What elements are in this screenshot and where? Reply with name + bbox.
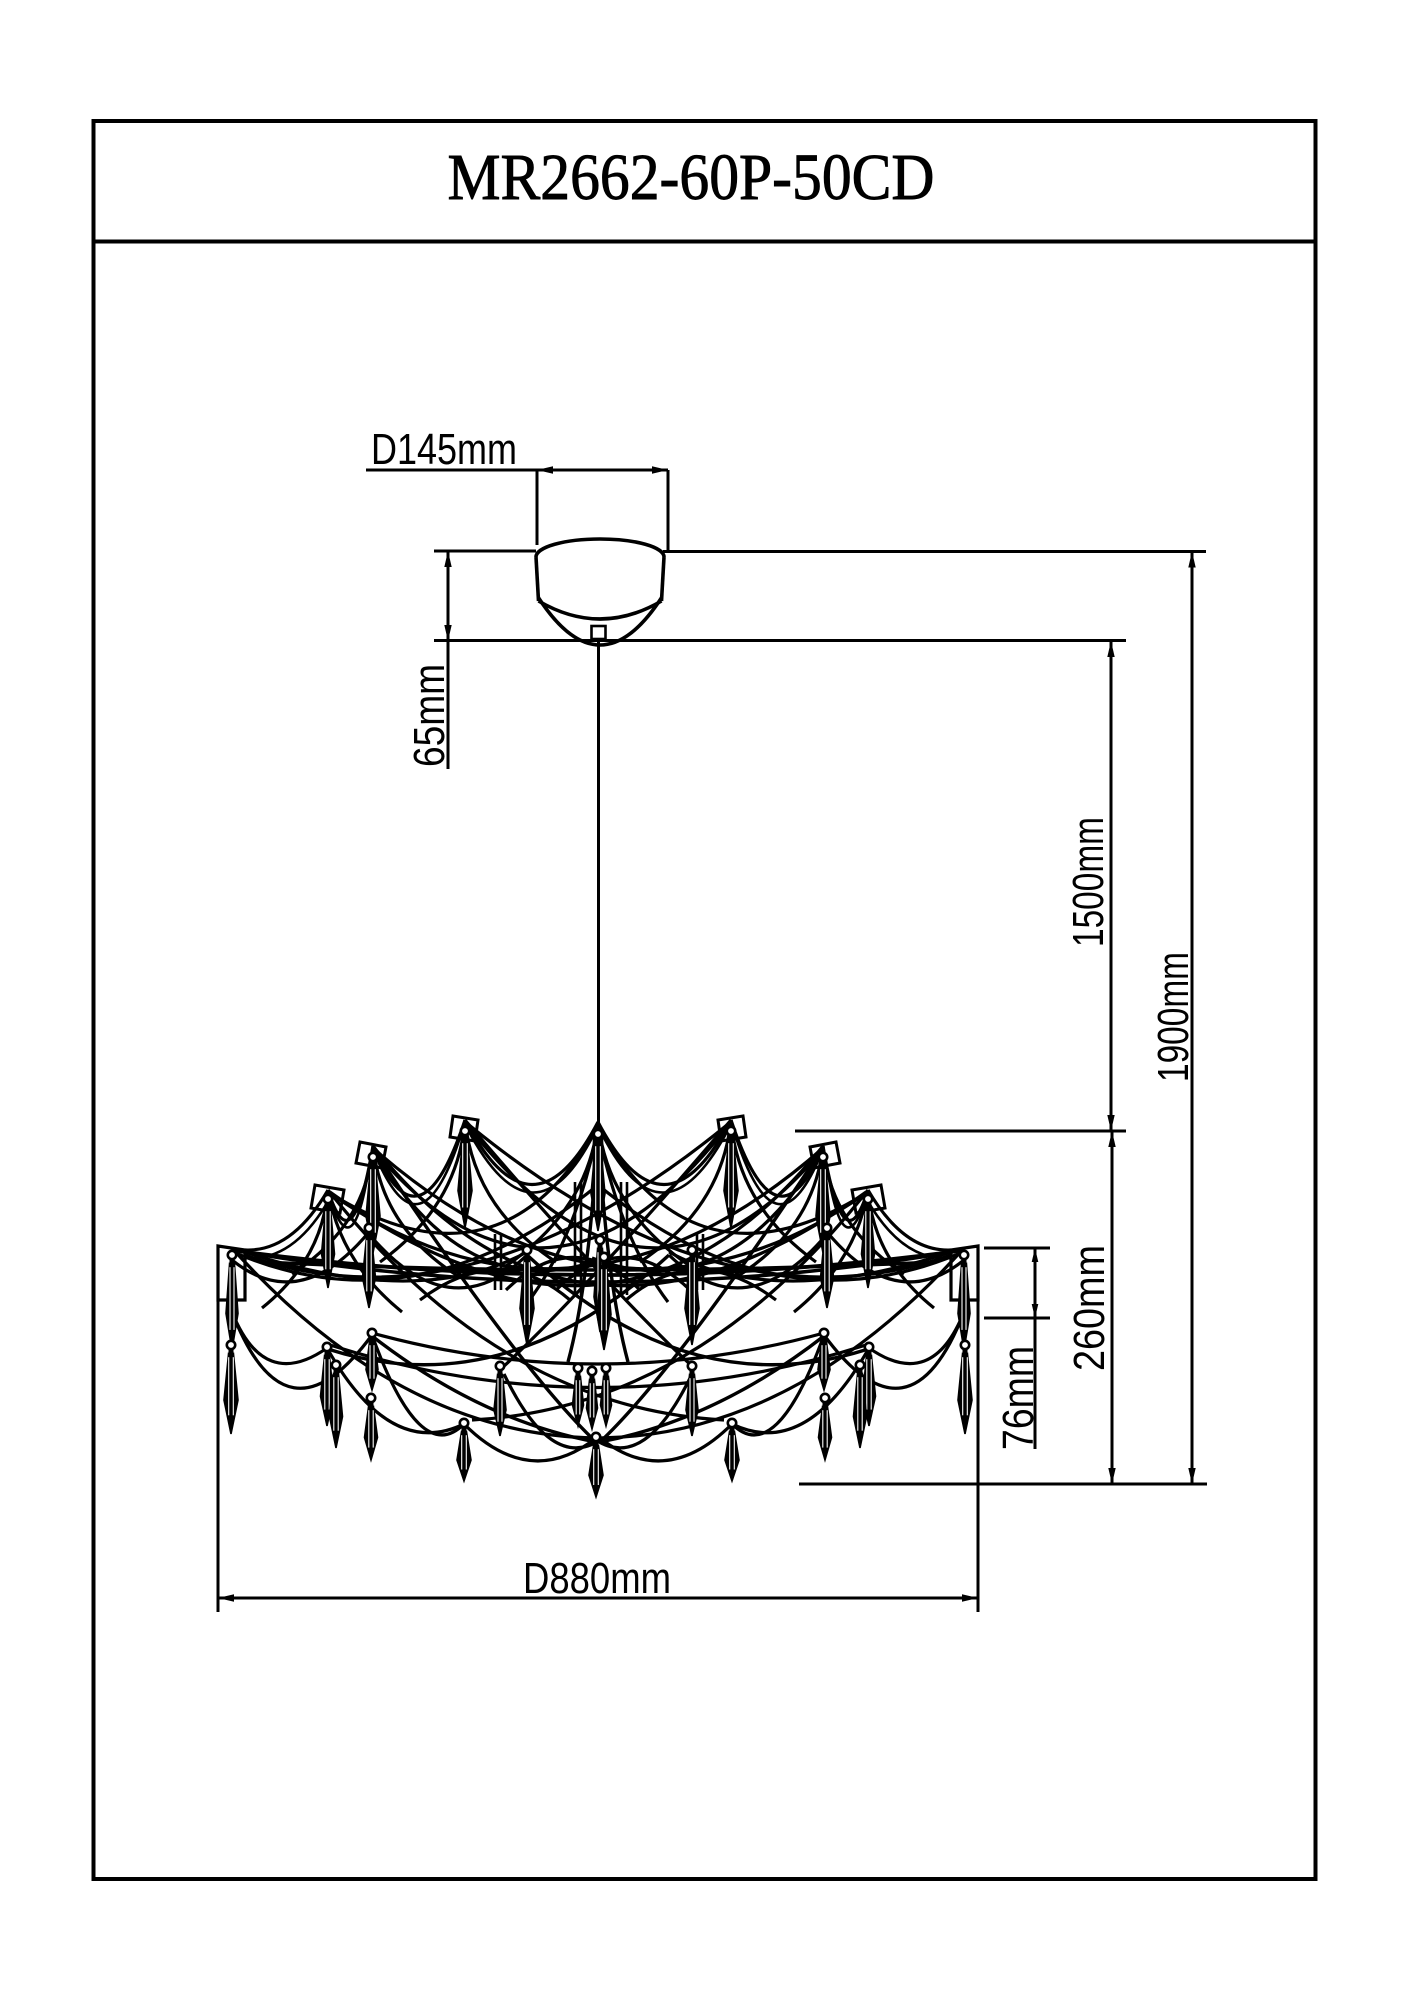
svg-text:260mm: 260mm [1065, 1245, 1114, 1371]
svg-text:MR2662-60P-50CD: MR2662-60P-50CD [448, 141, 935, 214]
svg-text:1500mm: 1500mm [1064, 817, 1113, 947]
svg-text:1900mm: 1900mm [1149, 952, 1198, 1082]
svg-text:65mm: 65mm [405, 664, 454, 767]
svg-text:D880mm: D880mm [523, 1554, 671, 1603]
svg-text:76mm: 76mm [994, 1346, 1043, 1450]
svg-text:D145mm: D145mm [371, 425, 517, 474]
